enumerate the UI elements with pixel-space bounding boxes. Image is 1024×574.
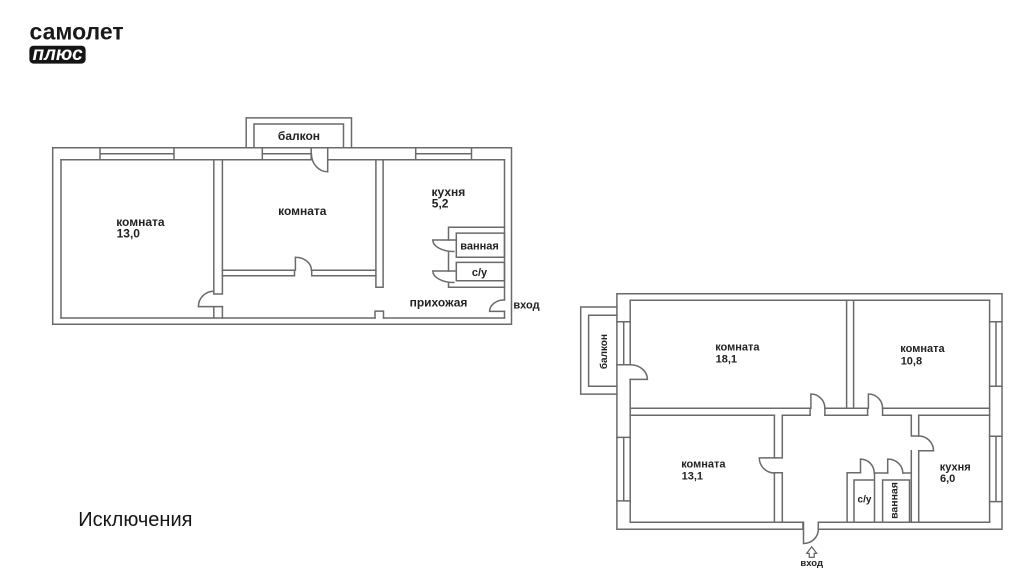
svg-text:балкон: балкон [278,129,320,143]
svg-text:Исключения: Исключения [78,509,192,531]
svg-text:6,0: 6,0 [940,473,955,485]
svg-text:5,2: 5,2 [432,197,449,211]
svg-text:18,1: 18,1 [716,354,737,366]
svg-text:ванная: ванная [460,241,499,253]
svg-text:ванная: ванная [889,482,901,519]
svg-text:кухня: кухня [940,461,971,473]
svg-text:комната: комната [681,459,726,471]
svg-text:плюс: плюс [33,44,84,65]
svg-text:комната: комната [278,204,327,218]
svg-text:вход: вход [513,300,539,312]
svg-text:с/у: с/у [858,495,872,506]
svg-text:самолет: самолет [30,19,124,45]
svg-text:прихожая: прихожая [410,295,468,309]
svg-text:с/у: с/у [472,267,488,279]
svg-text:комната: комната [715,342,760,354]
svg-text:комната: комната [900,343,945,355]
svg-text:10,8: 10,8 [901,356,922,368]
svg-text:вход: вход [800,558,823,569]
svg-text:13,1: 13,1 [682,470,703,482]
svg-text:балкон: балкон [598,334,610,369]
svg-text:13,0: 13,0 [117,227,141,241]
